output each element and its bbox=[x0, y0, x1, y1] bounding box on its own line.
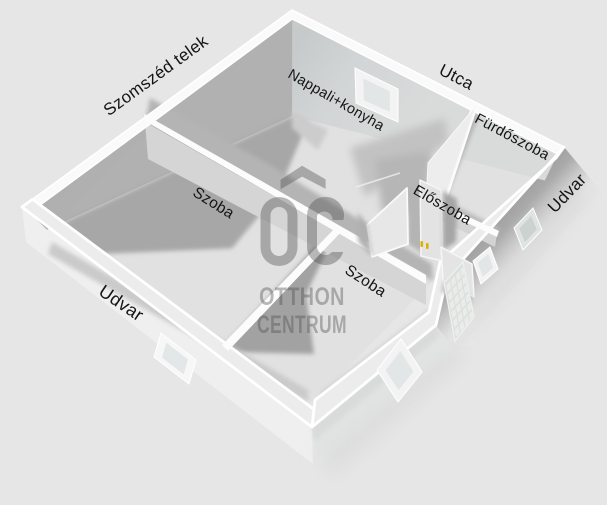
svg-text:OTTHON: OTTHON bbox=[259, 283, 345, 311]
svg-text:CENTRUM: CENTRUM bbox=[257, 310, 347, 339]
